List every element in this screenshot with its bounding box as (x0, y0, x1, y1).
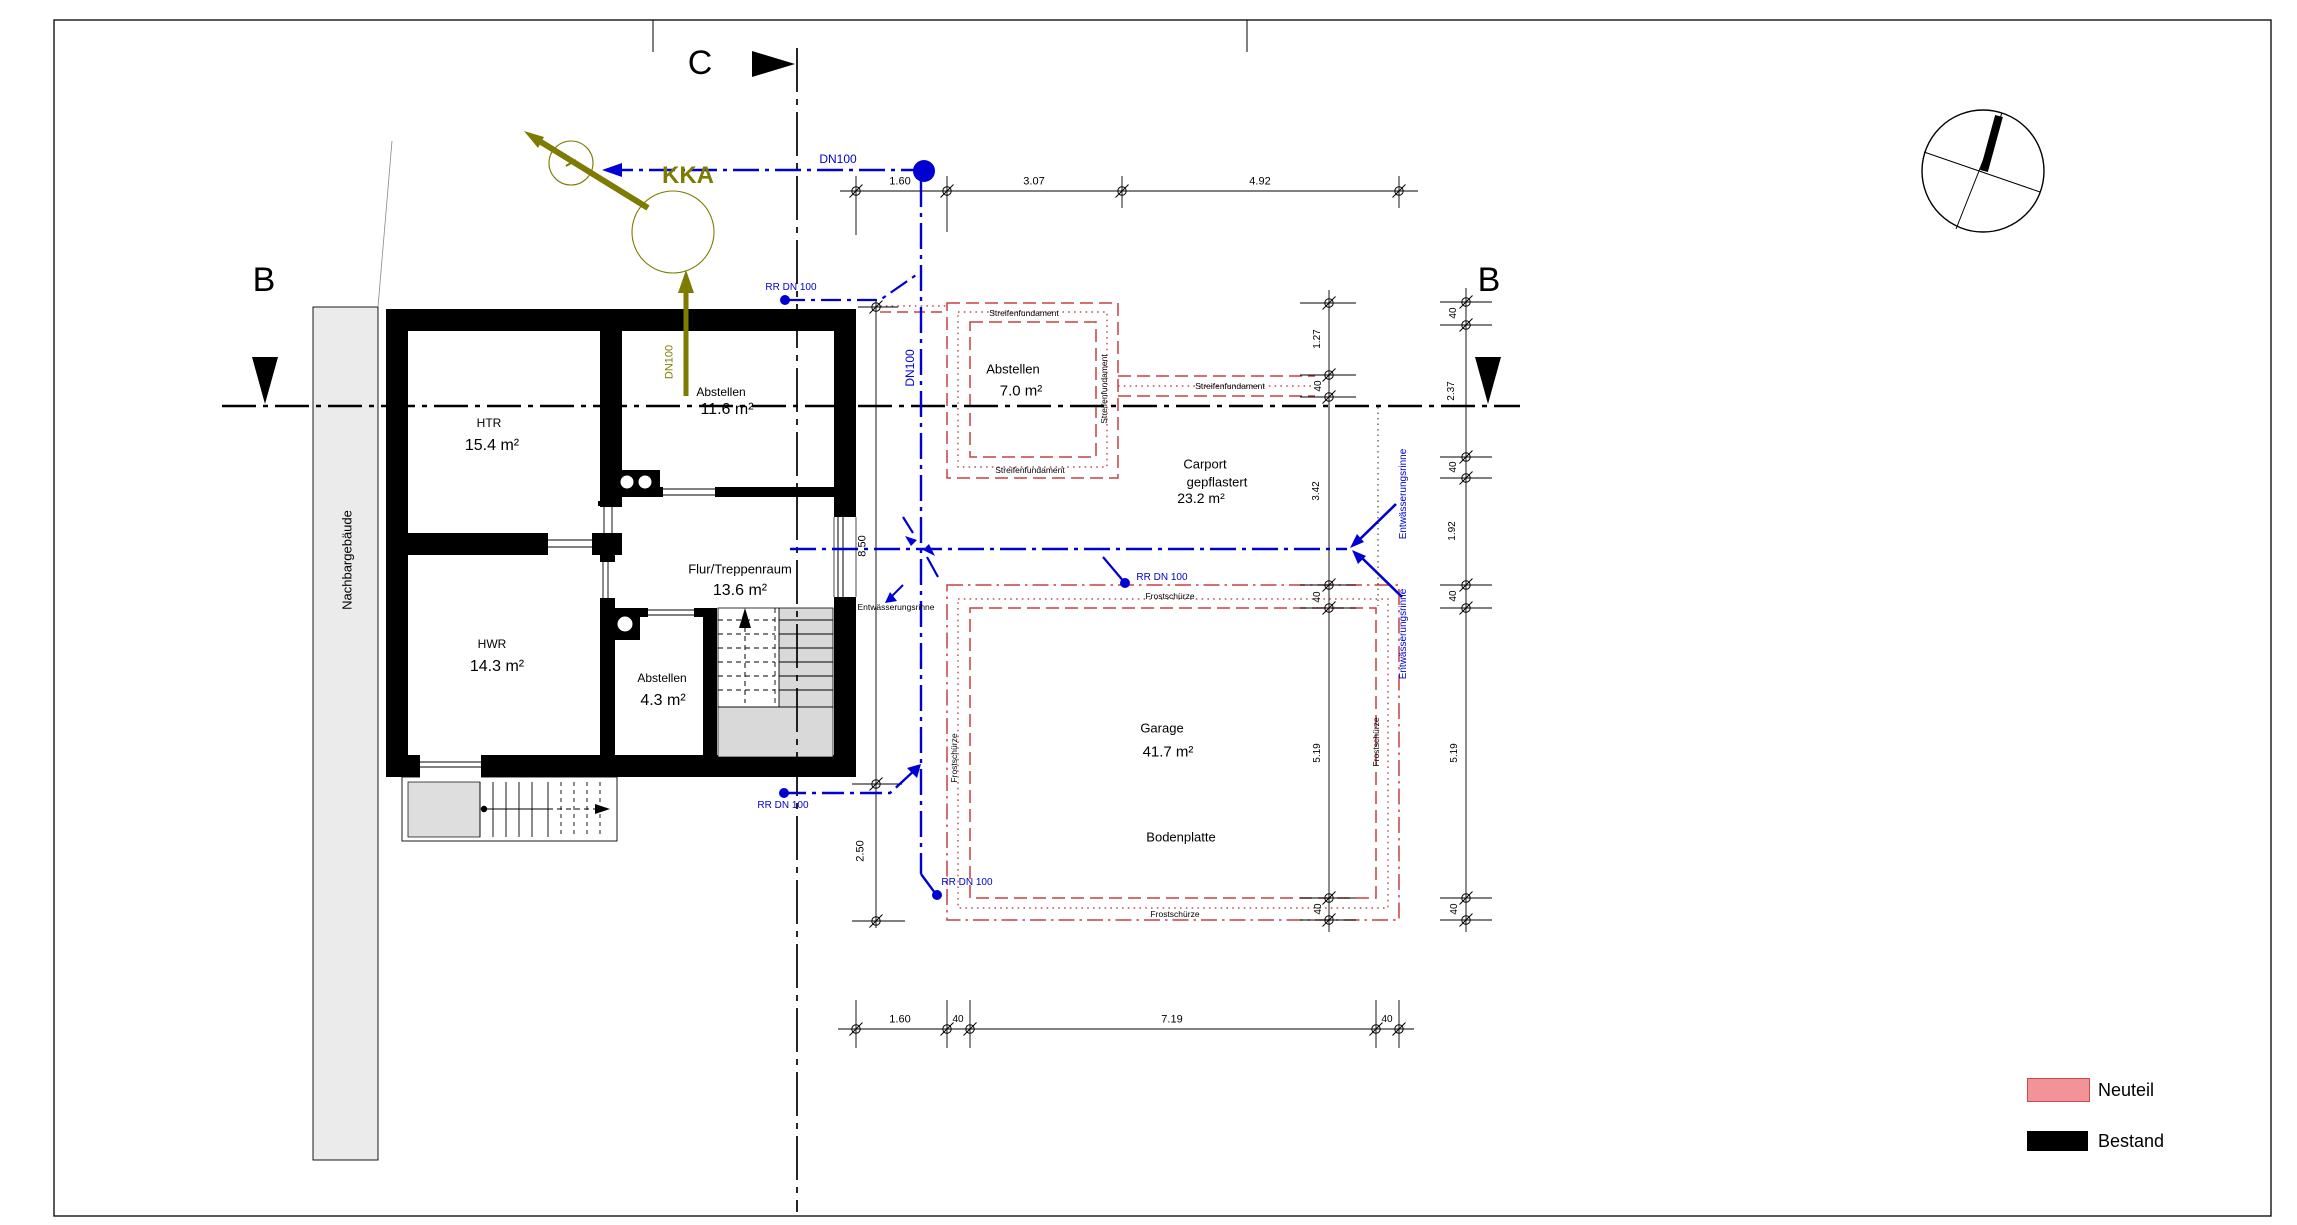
dim-bottom-3: 7.19 (1161, 1015, 1182, 1026)
dim-top-1: 1.60 (889, 177, 910, 188)
dim-left-1: 8.50 (858, 535, 869, 556)
pipe-arrows-and-nodes (602, 160, 1366, 900)
dim-top-2: 3.07 (1023, 177, 1044, 188)
gutter-label-garage: Entwässerungsrinne (1399, 589, 1409, 680)
bodenplatte-label: Bodenplatte (1146, 831, 1215, 844)
carport-name: Carport (1183, 458, 1226, 471)
room-abstellen-neu-name: Abstellen (986, 363, 1039, 376)
streifenfundament-east: Streifenfundament (1195, 382, 1264, 391)
dn100-label-kka-p: DN100 (665, 345, 676, 379)
dim-ri-4: 40 (1313, 591, 1323, 602)
floor-plan-sheet: C B B KKA DN100 DN100 DN100 RR DN 100 RR… (0, 0, 2297, 1225)
garage-name: Garage (1140, 722, 1183, 735)
streifenfundament-bottom: Streifenfundament (995, 466, 1064, 475)
carport-area: 23.2 m² (1177, 491, 1224, 505)
section-marker-b-right: B (1478, 263, 1501, 297)
room-flur-name: Flur/Treppenraum (688, 563, 792, 576)
fundament-outlines (880, 303, 1399, 920)
drainage-pipes (607, 170, 1402, 893)
room-flur-area: 13.6 m² (713, 583, 767, 599)
legend-bestand-swatch (2027, 1131, 2088, 1151)
room-abstellen-neu-area: 7.0 m² (1000, 384, 1043, 399)
dim-ro-7: 40 (1450, 903, 1460, 914)
dim-bottom-1: 1.60 (889, 1015, 910, 1026)
gutter-label-carport: Entwässerungsrinne (1399, 449, 1409, 540)
neighbor-building (313, 141, 392, 1160)
dim-ri-2: 40 (1314, 380, 1324, 391)
frostschuerze-top: Frostschürze (1145, 592, 1194, 601)
dn100-label-top: DN100 (819, 153, 856, 165)
legend-bestand-label: Bestand (2098, 1132, 2164, 1150)
dn100-label-vertical: DN100 (904, 349, 916, 386)
streifenfundament-top: Streifenfundament (989, 309, 1058, 318)
rr-dn100-bottom-left: RR DN 100 (757, 801, 808, 811)
dim-bottom-4: 40 (1381, 1015, 1392, 1025)
room-abstellen2-name: Abstellen (637, 672, 686, 684)
dim-ro-6: 5.19 (1450, 743, 1460, 762)
streifenfundament-right: Streifenfundament (1100, 354, 1109, 423)
garage-area: 41.7 m² (1143, 745, 1194, 760)
dim-ri-6: 40 (1314, 903, 1324, 914)
exterior-stair (402, 777, 617, 841)
rr-dn100-top: RR DN 100 (765, 283, 816, 293)
interior-stair (718, 608, 833, 757)
dim-ro-1: 40 (1449, 307, 1459, 318)
section-marker-b-left: B (253, 263, 276, 297)
plan-linework (0, 0, 2297, 1225)
room-htr-name: HTR (477, 417, 502, 429)
frostschuerze-right: Frostschürze (1372, 717, 1381, 766)
dim-ri-5: 5.19 (1313, 743, 1323, 762)
dim-ro-2: 2.37 (1447, 381, 1457, 400)
north-compass (1922, 110, 2044, 232)
dim-bottom-2: 40 (952, 1015, 963, 1025)
legend-neuteil-label: Neuteil (2098, 1081, 2154, 1099)
frostschuerze-left: Frostschürze (950, 733, 959, 782)
dim-top-3: 4.92 (1249, 177, 1270, 188)
room-abstellen2-area: 4.3 m² (640, 693, 685, 709)
section-marker-c: C (688, 46, 713, 80)
rr-dn100-mid: RR DN 100 (1136, 573, 1187, 583)
neighbor-building-label: Nachbargebäude (341, 510, 354, 610)
room-htr-area: 15.4 m² (465, 438, 519, 454)
dim-ri-1: 1.27 (1313, 329, 1323, 348)
dim-ri-3: 3.42 (1312, 481, 1322, 500)
carport-name2: gepflastert (1187, 476, 1248, 489)
room-abstellen1-name: Abstellen (696, 386, 745, 398)
frostschuerze-bottom: Frostschürze (1150, 910, 1199, 919)
gutter-label-building: Entwässerungsrinne (857, 603, 934, 612)
dim-ro-5: 40 (1449, 590, 1459, 601)
kka-label: KKA (662, 164, 714, 188)
room-abstellen1-area: 11.6 m² (700, 402, 753, 418)
dim-ro-4: 1.92 (1448, 521, 1458, 540)
dim-ro-3: 40 (1449, 461, 1459, 472)
room-hwr-name: HWR (478, 638, 507, 650)
dim-left-2: 2.50 (856, 840, 867, 861)
room-hwr-area: 14.3 m² (470, 659, 524, 675)
rr-dn100-garage: RR DN 100 (941, 878, 992, 888)
legend-neuteil-swatch (2027, 1078, 2090, 1102)
